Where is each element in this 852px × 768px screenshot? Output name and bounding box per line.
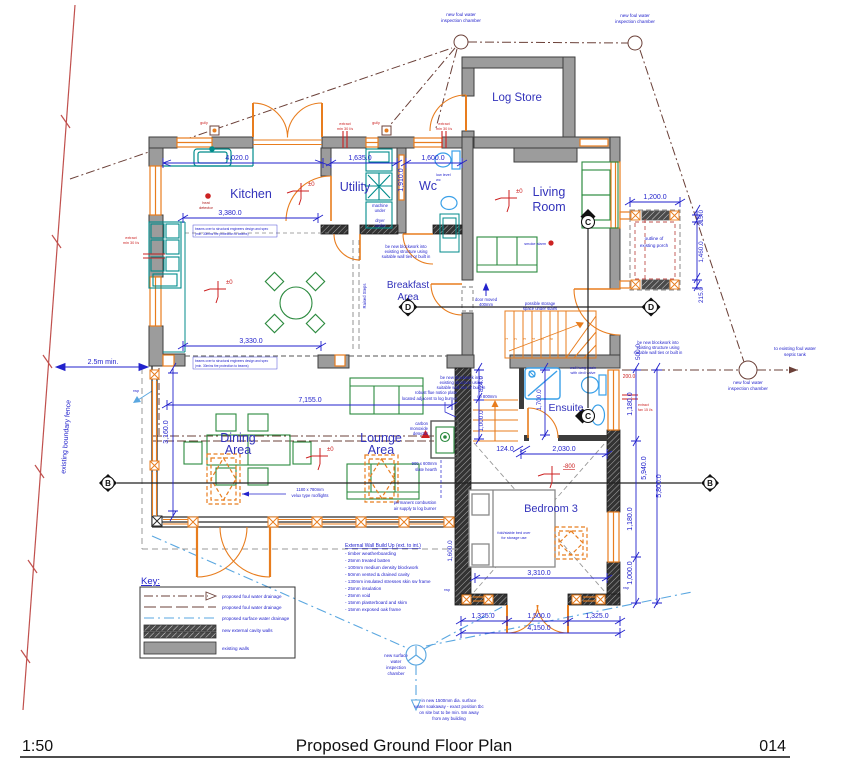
svg-text:- 100mm medium density blockwo: - 100mm medium density blockwork: [345, 565, 419, 570]
svg-text:beams over to structural engin: beams over to structural engineers desig…: [195, 227, 269, 231]
svg-text:wall hung basin: wall hung basin: [570, 366, 596, 370]
svg-text:min 30 l/s: min 30 l/s: [123, 241, 139, 245]
svg-text:External Wall Build Up (ext. t: External Wall Build Up (ext. to int.): [345, 543, 421, 549]
svg-text:min 30 l/s: min 30 l/s: [436, 127, 452, 131]
svg-text:fan 15 l/s: fan 15 l/s: [638, 408, 653, 412]
svg-text:Area: Area: [225, 443, 251, 457]
svg-text:1,635.0: 1,635.0: [348, 155, 371, 162]
svg-text:inspection: inspection: [386, 665, 406, 670]
svg-text:215.0: 215.0: [698, 287, 705, 303]
svg-text:5,940.0: 5,940.0: [641, 456, 648, 479]
svg-text:±0: ±0: [308, 182, 315, 188]
svg-text:3,380.0: 3,380.0: [218, 210, 241, 217]
svg-text:1,700.0: 1,700.0: [536, 389, 543, 411]
svg-text:inspection chamber: inspection chamber: [728, 386, 768, 391]
svg-text:2,030.0: 2,030.0: [552, 446, 575, 453]
svg-text:under: under: [375, 208, 386, 213]
svg-text:2.5m min.: 2.5m min.: [88, 359, 119, 366]
svg-text:beams over to structural engin: beams over to structural engineers desig…: [195, 359, 269, 363]
svg-text:D: D: [405, 302, 411, 312]
svg-text:Area: Area: [397, 292, 419, 303]
svg-text:5,800.0: 5,800.0: [656, 474, 663, 497]
svg-text:septic tank: septic tank: [784, 352, 807, 357]
svg-text:D: D: [648, 302, 654, 312]
svg-text:existing walls: existing walls: [222, 646, 250, 651]
svg-text:existing porch: existing porch: [640, 243, 669, 248]
svg-text:-800: -800: [563, 464, 576, 470]
svg-text:1,000.0: 1,000.0: [478, 410, 485, 432]
svg-text:permanent combustion: permanent combustion: [394, 500, 437, 505]
svg-text:extract: extract: [438, 122, 450, 126]
svg-text:1,600.0: 1,600.0: [447, 540, 454, 562]
svg-text:215.0: 215.0: [698, 210, 705, 226]
svg-text:inspection chamber: inspection chamber: [441, 18, 481, 23]
svg-text:1,180.0: 1,180.0: [627, 392, 634, 415]
svg-text:- 25mm treated batten: - 25mm treated batten: [345, 558, 391, 563]
svg-text:Bedroom 3: Bedroom 3: [524, 503, 578, 515]
svg-text:Log Store: Log Store: [492, 92, 542, 104]
svg-text:robust flue notice plate: robust flue notice plate: [415, 390, 458, 395]
svg-text:(min. 30mins fire protection t: (min. 30mins fire protection to beams): [195, 232, 249, 236]
svg-text:- 25mm void: - 25mm void: [345, 593, 371, 598]
svg-text:900 x 600mm: 900 x 600mm: [412, 461, 438, 466]
svg-text:extract: extract: [125, 236, 137, 240]
svg-text:rwp: rwp: [623, 586, 629, 590]
svg-text:chamber: chamber: [387, 671, 405, 676]
svg-text:3,330.0: 3,330.0: [239, 338, 262, 345]
svg-text:- 50mm vented & drained cavity: - 50mm vented & drained cavity: [345, 572, 410, 577]
svg-text:Raised Steps: Raised Steps: [362, 284, 367, 309]
svg-text:3,160.0: 3,160.0: [163, 420, 170, 443]
svg-text:rwp: rwp: [444, 588, 450, 592]
svg-text:±0: ±0: [516, 189, 523, 195]
svg-text:with dedi valve: with dedi valve: [571, 371, 596, 375]
svg-text:1,200.0: 1,200.0: [643, 194, 666, 201]
svg-text:up 800mm: up 800mm: [477, 394, 497, 399]
svg-text:gully: gully: [200, 121, 208, 125]
svg-text:Room: Room: [532, 200, 565, 214]
svg-text:new foul water: new foul water: [446, 12, 476, 17]
svg-text:4,020.0: 4,020.0: [225, 155, 248, 162]
svg-text:014: 014: [759, 738, 786, 755]
svg-text:±0: ±0: [327, 447, 334, 453]
svg-text:- 130mm insulated stresses ski: - 130mm insulated stresses skin sw frame: [345, 579, 431, 584]
svg-text:extract: extract: [339, 122, 351, 126]
svg-text:space under stairs: space under stairs: [523, 306, 557, 311]
svg-text:heat: heat: [202, 201, 210, 205]
svg-text:velux type rooflights: velux type rooflights: [291, 493, 328, 498]
svg-text:suitable wall ties or built in: suitable wall ties or built in: [382, 254, 431, 259]
svg-text:- timber weatherboarding: - timber weatherboarding: [345, 551, 397, 556]
svg-text:1,500.0: 1,500.0: [527, 613, 550, 620]
svg-text:200.0: 200.0: [623, 374, 636, 380]
svg-text:min 30 l/s: min 30 l/s: [337, 127, 353, 131]
svg-text:outline of: outline of: [645, 236, 664, 241]
svg-text:B: B: [105, 479, 111, 488]
svg-text:proposed foul water drainage: proposed foul water drainage: [222, 594, 282, 599]
svg-text:3,310.0: 3,310.0: [527, 570, 550, 577]
svg-text:Living: Living: [533, 185, 566, 199]
svg-text:1,325.0: 1,325.0: [585, 613, 608, 620]
svg-text:400mm: 400mm: [479, 302, 493, 307]
svg-text:water: water: [391, 659, 402, 664]
svg-text:in new 1500mm dia. surface: in new 1500mm dia. surface: [422, 698, 477, 703]
svg-text:Key:: Key:: [141, 576, 160, 587]
svg-text:1,600.0: 1,600.0: [421, 155, 444, 162]
svg-text:- 15mm plasterboard and skim: - 15mm plasterboard and skim: [345, 600, 407, 605]
svg-text:1:50: 1:50: [22, 738, 53, 755]
svg-text:Utility: Utility: [340, 180, 371, 194]
svg-text:- 15mm exposed oak frame: - 15mm exposed oak frame: [345, 607, 401, 612]
svg-text:water soakaway - exact positio: water soakaway - exact position tbc: [414, 704, 484, 709]
svg-text:C: C: [585, 411, 591, 421]
svg-text:Wc: Wc: [419, 179, 437, 193]
svg-text:(min. 30mins fire protection t: (min. 30mins fire protection to beams): [195, 364, 249, 368]
svg-text:new foul water: new foul water: [620, 13, 650, 18]
svg-text:1,000.0: 1,000.0: [627, 561, 634, 584]
svg-text:located adjacent to log burner: located adjacent to log burner: [402, 396, 458, 401]
svg-text:inspection chamber: inspection chamber: [615, 19, 655, 24]
svg-text:4,150.0: 4,150.0: [527, 625, 550, 632]
svg-text:7,155.0: 7,155.0: [298, 397, 321, 404]
svg-text:new external cavity walls: new external cavity walls: [222, 628, 273, 633]
svg-text:from any building: from any building: [432, 716, 466, 721]
svg-text:proposed foul water drainage: proposed foul water drainage: [222, 605, 282, 610]
svg-text:new foul water: new foul water: [733, 380, 763, 385]
svg-text:gully: gully: [372, 121, 380, 125]
svg-text:Proposed Ground Floor Plan: Proposed Ground Floor Plan: [296, 736, 512, 755]
svg-text:proposed surface water drainag: proposed surface water drainage: [222, 616, 290, 621]
svg-text:1,910.0: 1,910.0: [398, 168, 405, 191]
svg-text:air supply to log burner: air supply to log burner: [394, 506, 437, 511]
svg-text:detector: detector: [199, 206, 213, 210]
svg-text:new surface: new surface: [384, 653, 408, 658]
svg-text:smoke alarm: smoke alarm: [524, 242, 546, 246]
svg-text:under: under: [375, 223, 386, 228]
svg-text:Ensuite: Ensuite: [548, 402, 583, 414]
svg-text:B: B: [707, 479, 713, 488]
svg-text:Kitchen: Kitchen: [230, 187, 272, 201]
svg-text:low level: low level: [436, 173, 451, 177]
svg-text:±0: ±0: [226, 280, 233, 286]
svg-text:detector: detector: [413, 431, 429, 436]
svg-text:- 25mm insulation: - 25mm insulation: [345, 586, 382, 591]
svg-text:1,180.0: 1,180.0: [627, 507, 634, 530]
svg-text:1180 x 780mm: 1180 x 780mm: [296, 487, 324, 492]
svg-text:rwp: rwp: [133, 389, 139, 393]
svg-text:for storage use: for storage use: [501, 536, 526, 540]
svg-text:extract: extract: [638, 403, 649, 407]
svg-text:Area: Area: [368, 443, 394, 457]
svg-text:1,460.0: 1,460.0: [698, 241, 705, 263]
svg-text:Breakfast: Breakfast: [387, 280, 429, 291]
svg-text:slate hearth: slate hearth: [415, 467, 438, 472]
svg-text:C: C: [585, 217, 591, 227]
svg-text:fold/stable bed over: fold/stable bed over: [497, 531, 531, 535]
svg-text:to existing foul water: to existing foul water: [774, 346, 816, 351]
svg-text:on site but to be min. 5m away: on site but to be min. 5m away: [419, 710, 479, 715]
svg-text:124.0: 124.0: [496, 446, 514, 453]
svg-text:suitable wall ties or built in: suitable wall ties or built in: [634, 350, 683, 355]
svg-text:1,325.0: 1,325.0: [471, 613, 494, 620]
